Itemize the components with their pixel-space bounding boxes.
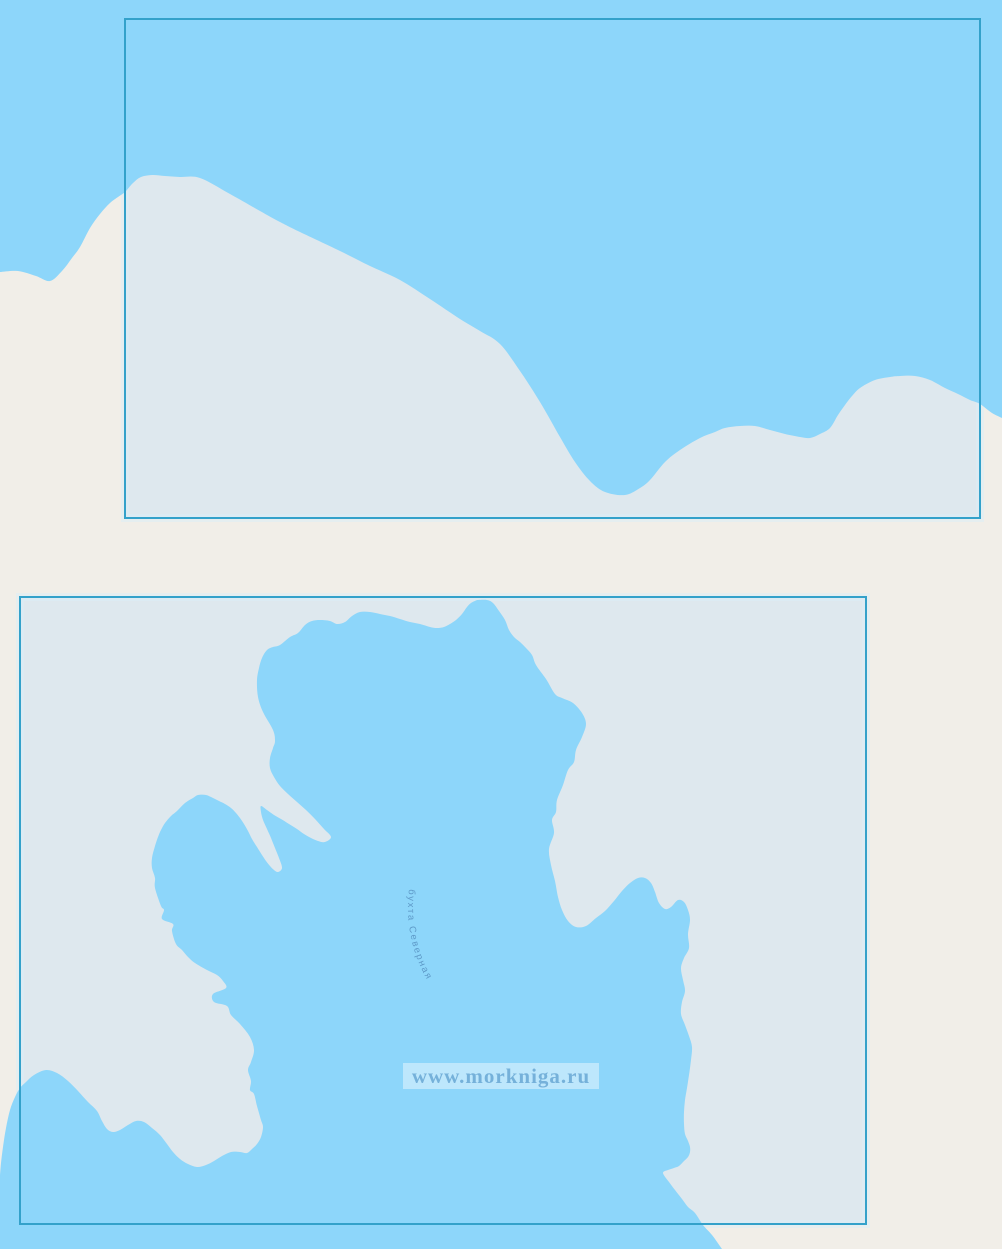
svg-text:www.morkniga.ru: www.morkniga.ru <box>412 1064 590 1088</box>
